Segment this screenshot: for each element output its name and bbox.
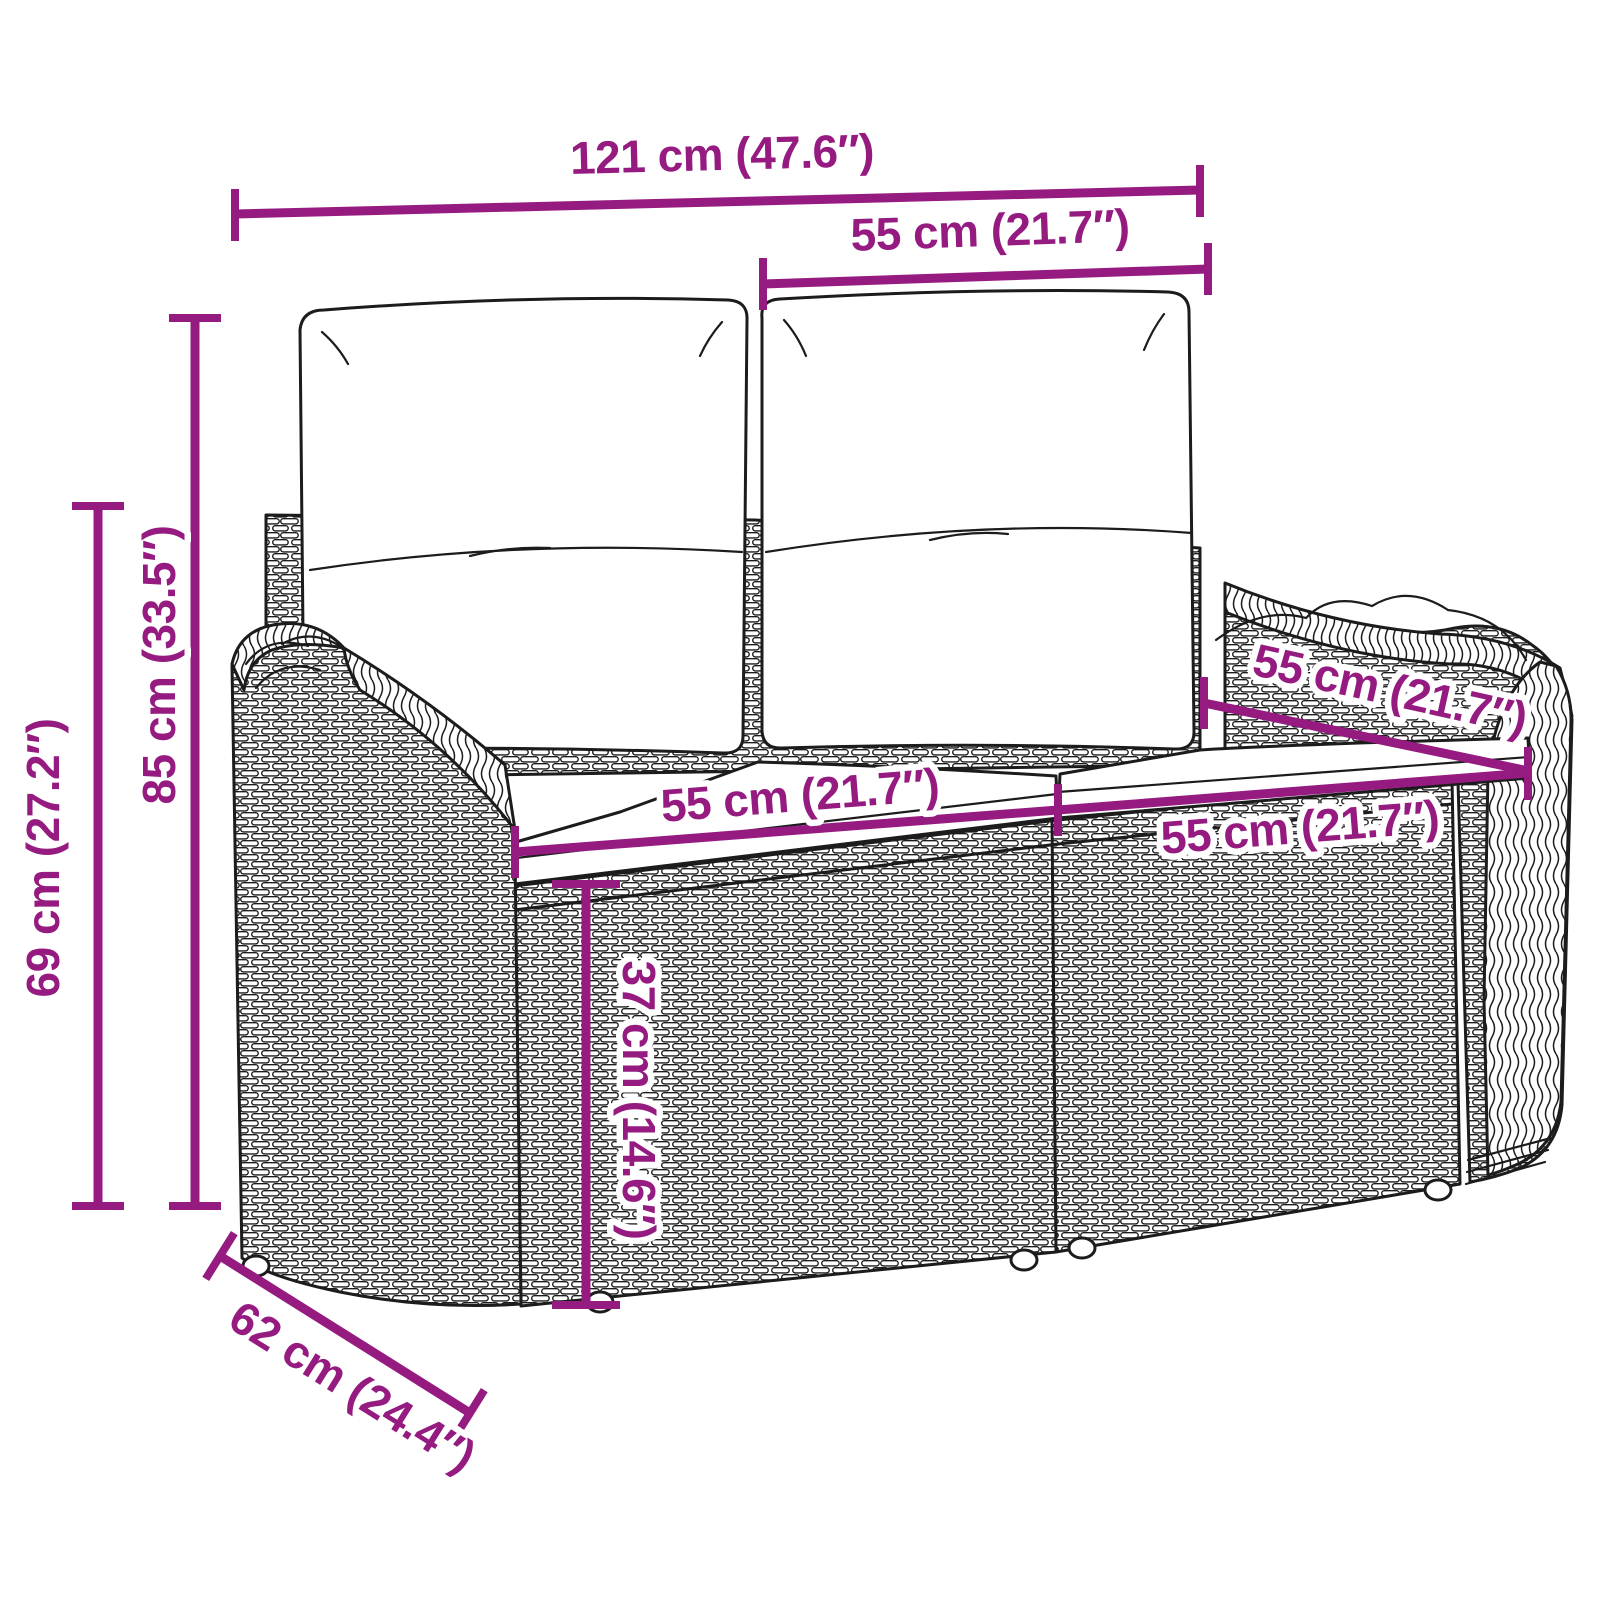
dim-back-cushion-width-label: 55 cm (21.7″) xyxy=(850,199,1131,261)
bench-dimension-diagram: 121 cm (47.6″) 55 cm (21.7″) 85 cm (33.5… xyxy=(0,0,1600,1600)
dim-seat-height-label: 37 cm (14.6″) xyxy=(613,961,665,1240)
dim-overall-depth-label: 62 cm (24.4″) xyxy=(220,1290,484,1482)
back-cushion-right xyxy=(762,291,1194,750)
dimension-diagram-page: 121 cm (47.6″) 55 cm (21.7″) 85 cm (33.5… xyxy=(0,0,1600,1600)
dim-armrest-height: 69 cm (27.2″) xyxy=(17,506,124,1206)
dim-overall-width-label: 121 cm (47.6″) xyxy=(569,124,874,184)
dim-armrest-height-label: 69 cm (27.2″) xyxy=(17,719,69,998)
dim-overall-depth-tick-left xyxy=(206,1233,235,1279)
dim-overall-height: 85 cm (33.5″) xyxy=(133,318,221,1206)
dim-overall-height-label: 85 cm (33.5″) xyxy=(133,526,185,805)
